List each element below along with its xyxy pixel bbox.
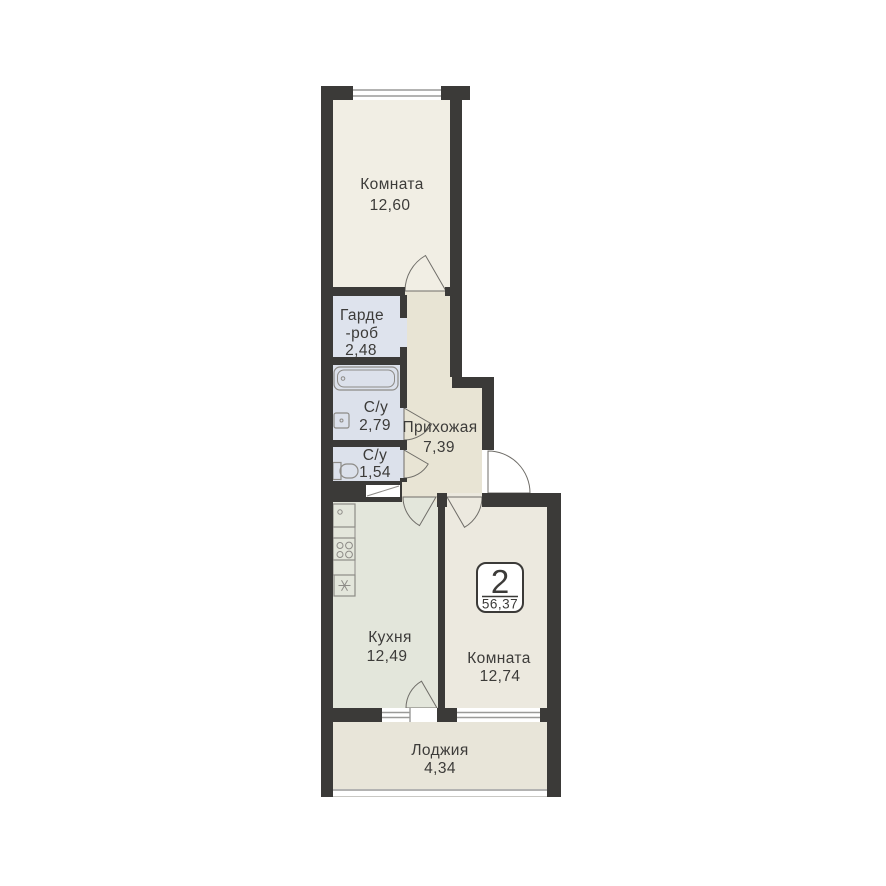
wall-divider-3 [400, 440, 407, 450]
hallway-area: 7,39 [423, 439, 455, 456]
kitchen-label: Кухня [368, 629, 411, 646]
wall-kitchen-room [438, 502, 445, 708]
window-icon-loggia-glazing [333, 789, 547, 797]
wall-divider-1 [400, 295, 407, 318]
wall-loggia-mid [437, 708, 457, 722]
badge-total-area: 56,37 [482, 597, 518, 612]
wardrobe-area: 2,48 [345, 342, 377, 359]
window-band [457, 708, 540, 722]
window-icon-room-bottom [457, 708, 540, 722]
wc-bottom-door-overlay [366, 485, 400, 497]
wc-label: С/у [363, 447, 387, 464]
badge-rooms-count: 2 [491, 563, 509, 600]
wall-loggia-right [540, 708, 561, 722]
floor-plan-canvas: 2 56,37 Комната 12,60 Гарде -роб 2,48 С/… [0, 0, 886, 886]
hallway-label: Прихожая [402, 419, 477, 436]
wall-right-lower [547, 493, 561, 797]
room-bottom-area: 12,74 [480, 668, 521, 685]
wall-loggia-left [321, 708, 382, 722]
bathroom-label: С/у [364, 399, 388, 416]
wall-door-post [445, 287, 452, 296]
loggia-area: 4,34 [424, 760, 456, 777]
room-top-floor [333, 100, 450, 287]
window-band [353, 86, 441, 100]
window-icon-kitchen-balcony [382, 708, 437, 722]
wardrobe-door-opening [400, 318, 407, 347]
wall-step [452, 377, 494, 388]
total-area-badge: 2 56,37 [477, 563, 523, 612]
wall-top-left [321, 86, 353, 100]
wall-right-upper [450, 100, 462, 377]
room-bottom-label: Комната [467, 650, 531, 667]
wardrobe-label-1: Гарде [340, 307, 384, 324]
room-top-label: Комната [360, 176, 424, 193]
wall-room-top-bottom [333, 287, 405, 296]
wall-divider-2 [400, 347, 407, 408]
wardrobe-label-2: -роб [346, 325, 379, 342]
wall-top-right [441, 86, 470, 100]
wc-area: 1,54 [359, 464, 391, 481]
floor-plan-drawing: 2 56,37 Комната 12,60 Гарде -роб 2,48 С/… [0, 0, 886, 886]
door-arc-icon-entrance [488, 451, 530, 493]
kitchen-floor [333, 502, 438, 708]
window-icon-room-top [353, 86, 441, 100]
wall-entry-side [482, 388, 494, 450]
kitchen-area: 12,49 [367, 648, 408, 665]
wall-left [321, 86, 333, 797]
bathroom-area: 2,79 [359, 417, 391, 434]
loggia-label: Лоджия [411, 742, 468, 759]
room-top-area: 12,60 [370, 197, 411, 214]
wall-bathroom-wc [333, 440, 400, 447]
